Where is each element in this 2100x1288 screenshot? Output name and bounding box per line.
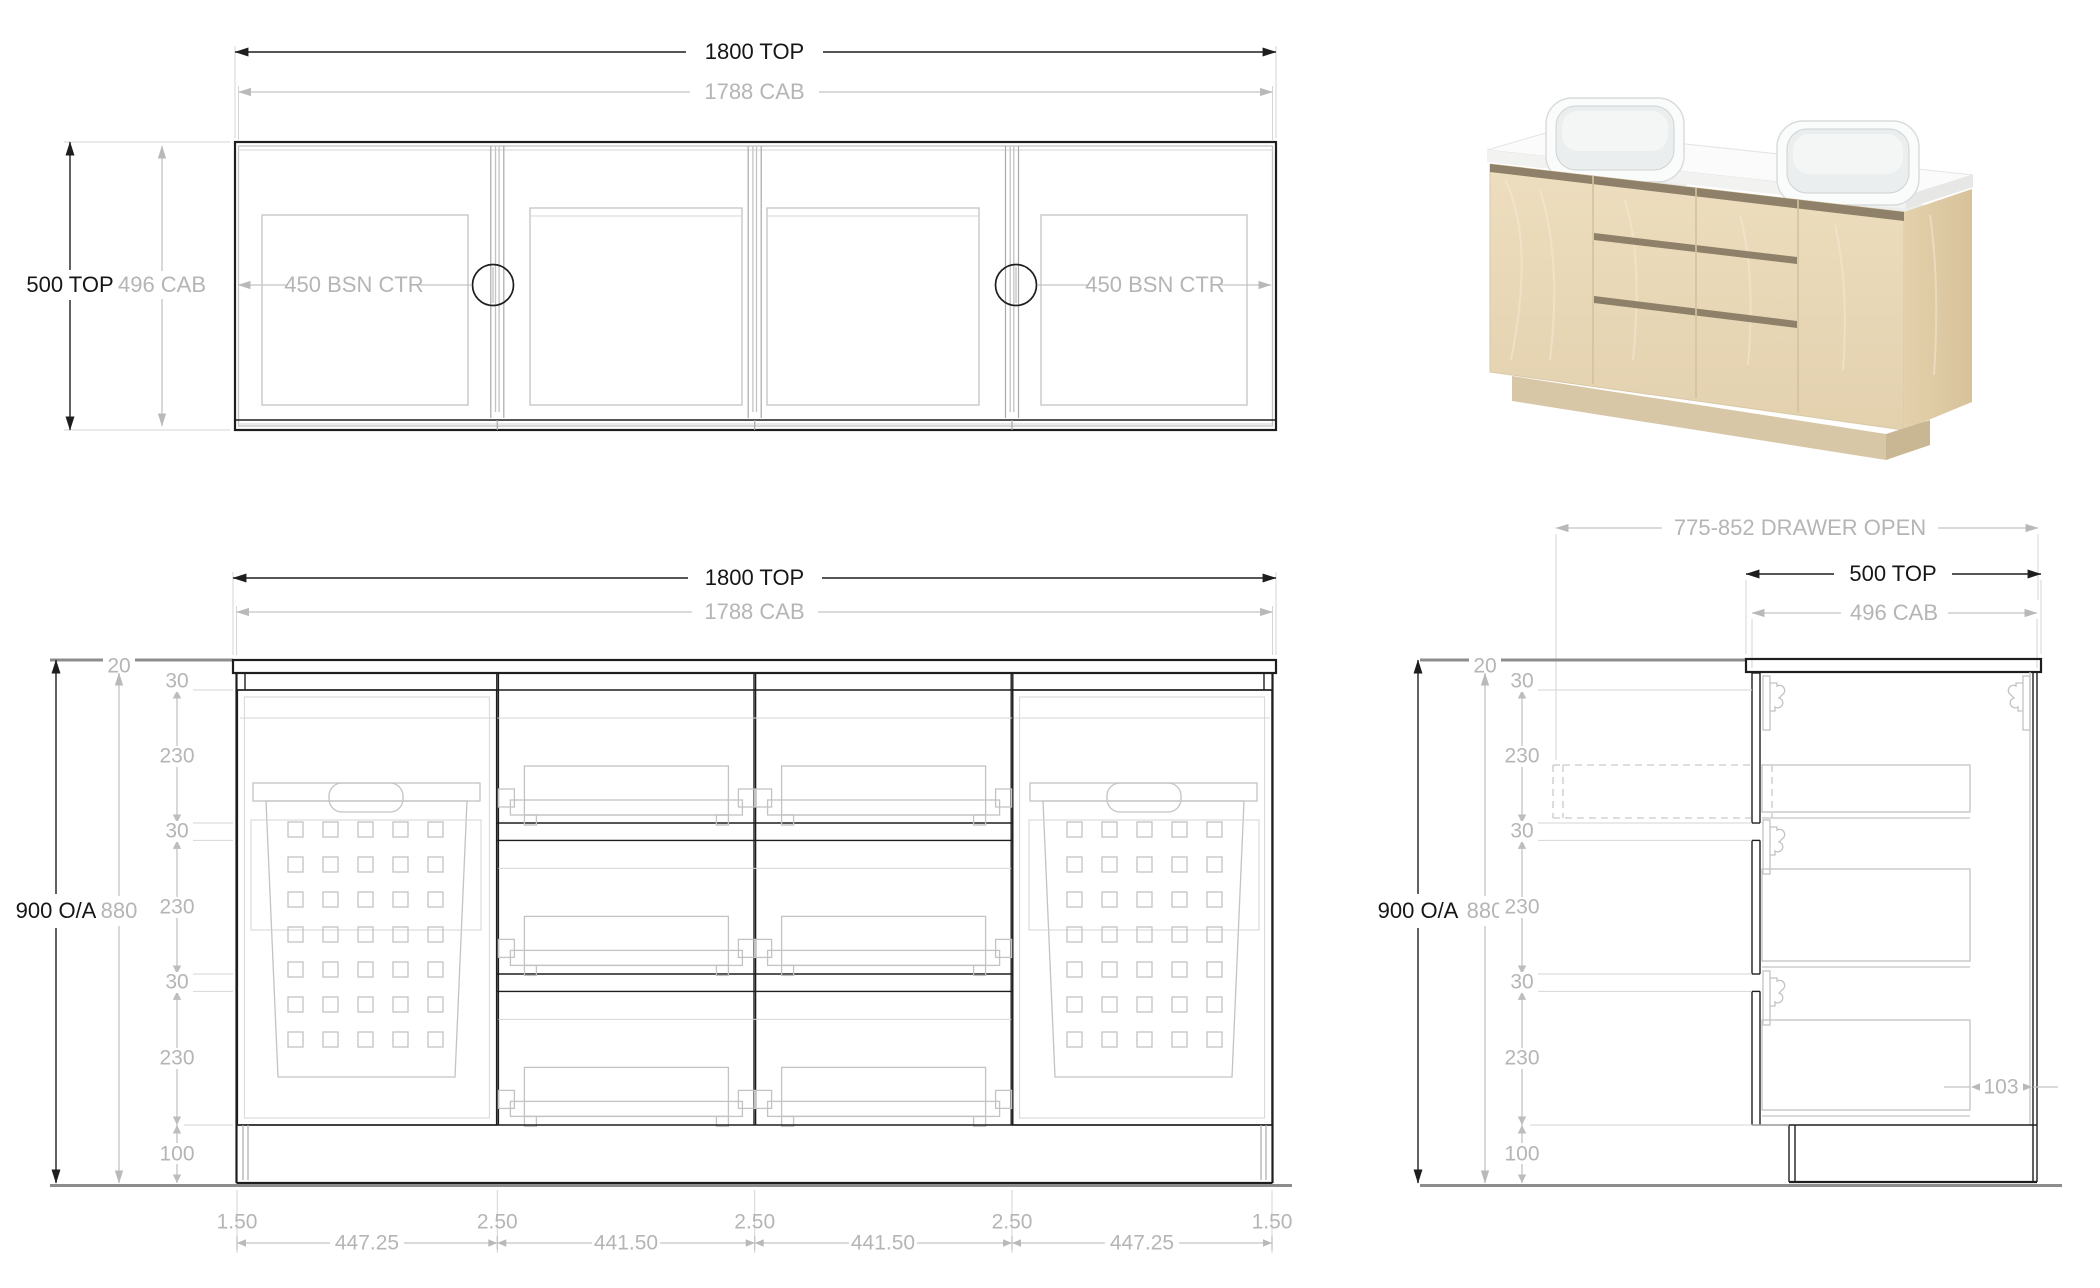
plan-dim-basin-left: 450 BSN CTR: [284, 272, 423, 297]
front-dim-width: 1800 TOP 1788 CAB: [233, 565, 1276, 655]
front-dim-width-top: 1800 TOP: [705, 565, 804, 590]
front-seg-1: 230: [159, 745, 194, 768]
front-seg-6: 100: [159, 1143, 194, 1166]
vanity-technical-drawing: 1800 TOP 1788 CAB 500 TOP 496 CAB 450 BS…: [0, 0, 2100, 1288]
front-gap-1: 2.50: [477, 1211, 518, 1234]
side-dim-heights: 900 O/A 20 880 30 230 30: [1366, 655, 1789, 1183]
plan-dim-width: 1800 TOP 1788 CAB: [235, 39, 1276, 140]
front-gap-0: 1.50: [217, 1211, 258, 1234]
plan-dim-width-top: 1800 TOP: [705, 39, 804, 64]
front-dim-overall: 900 O/A: [16, 898, 97, 923]
front-panel-0: 447.25: [335, 1232, 399, 1255]
side-seg-2: 30: [1510, 820, 1533, 843]
front-seg-2: 30: [165, 820, 188, 843]
side-seg-6: 100: [1504, 1143, 1539, 1166]
side-dim-depth-top: 500 TOP: [1849, 561, 1936, 586]
front-dim-cab-height: 880: [101, 898, 138, 923]
render-basin-right: [1777, 121, 1919, 205]
side-dim-depth-cab: 496 CAB: [1850, 600, 1938, 625]
side-seg-4: 30: [1510, 971, 1533, 994]
front-gap-2: 2.50: [734, 1211, 775, 1234]
front-seg-5: 230: [159, 1047, 194, 1070]
front-seg-0: 30: [165, 670, 188, 693]
plan-dim-basins: 450 BSN CTR 450 BSN CTR: [238, 272, 1271, 297]
open-drawer-dashed: [1553, 765, 1772, 818]
side-dim-top: 775-852 DRAWER OPEN 500 TOP 496 CAB: [1556, 515, 2041, 760]
side-dim-drawer-open: 775-852 DRAWER OPEN: [1674, 515, 1926, 540]
front-linework: [50, 660, 1292, 1186]
render-basin-left: [1546, 98, 1684, 182]
side-dim-overall: 900 O/A: [1378, 898, 1459, 923]
front-gap-4: 1.50: [1252, 1211, 1293, 1234]
side-dim-cab-height: 880: [1467, 898, 1504, 923]
side-back-gap-value: 103: [1983, 1076, 2018, 1099]
plan-dim-depth-cab: 496 CAB: [118, 272, 206, 297]
render-cabinet-side: [1904, 189, 1972, 430]
plan-dim-basin-right: 450 BSN CTR: [1085, 272, 1224, 297]
product-render: [1487, 98, 1973, 460]
front-dim-width-cab: 1788 CAB: [704, 599, 804, 624]
side-linework: [1420, 659, 2062, 1186]
front-panel-1: 441.50: [594, 1232, 658, 1255]
plan-dim-depth-top: 500 TOP: [26, 272, 113, 297]
side-seg-extensions: [1530, 690, 1789, 1125]
side-seg-1: 230: [1504, 745, 1539, 768]
plan-dim-depth: 500 TOP 496 CAB: [22, 142, 230, 430]
front-seg-4: 30: [165, 971, 188, 994]
front-panel-2: 441.50: [851, 1232, 915, 1255]
plan-view: 1800 TOP 1788 CAB 500 TOP 496 CAB 450 BS…: [22, 39, 1276, 430]
side-seg-0: 30: [1510, 670, 1533, 693]
side-dim-back-gap: 103: [1944, 1076, 2058, 1099]
front-dim-bottom: 1.50 2.50 2.50 2.50 1.50 447.25 441.50 4…: [217, 1190, 1293, 1255]
front-dim-heights: 900 O/A 20 880 30 230 30: [4, 655, 233, 1183]
drawing-sheet: 1800 TOP 1788 CAB 500 TOP 496 CAB 450 BS…: [0, 0, 2100, 1288]
front-panel-3: 447.25: [1110, 1232, 1174, 1255]
side-seg-5: 230: [1504, 1047, 1539, 1070]
side-seg-3: 230: [1504, 896, 1539, 919]
front-seg-3: 230: [159, 896, 194, 919]
front-gap-3: 2.50: [992, 1211, 1033, 1234]
side-elevation: 775-852 DRAWER OPEN 500 TOP 496 CAB: [1366, 515, 2062, 1186]
plan-dim-width-cab: 1788 CAB: [704, 79, 804, 104]
front-elevation: 1800 TOP 1788 CAB: [4, 565, 1292, 1255]
